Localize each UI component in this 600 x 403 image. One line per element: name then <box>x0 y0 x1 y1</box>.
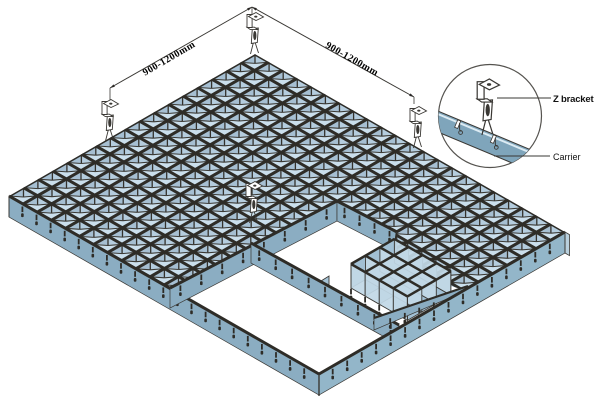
svg-text:900-1200mm: 900-1200mm <box>323 40 380 79</box>
svg-text:Carrier: Carrier <box>553 152 581 162</box>
svg-text:900-1200mm: 900-1200mm <box>141 39 198 78</box>
svg-text:Z bracket: Z bracket <box>553 94 594 105</box>
